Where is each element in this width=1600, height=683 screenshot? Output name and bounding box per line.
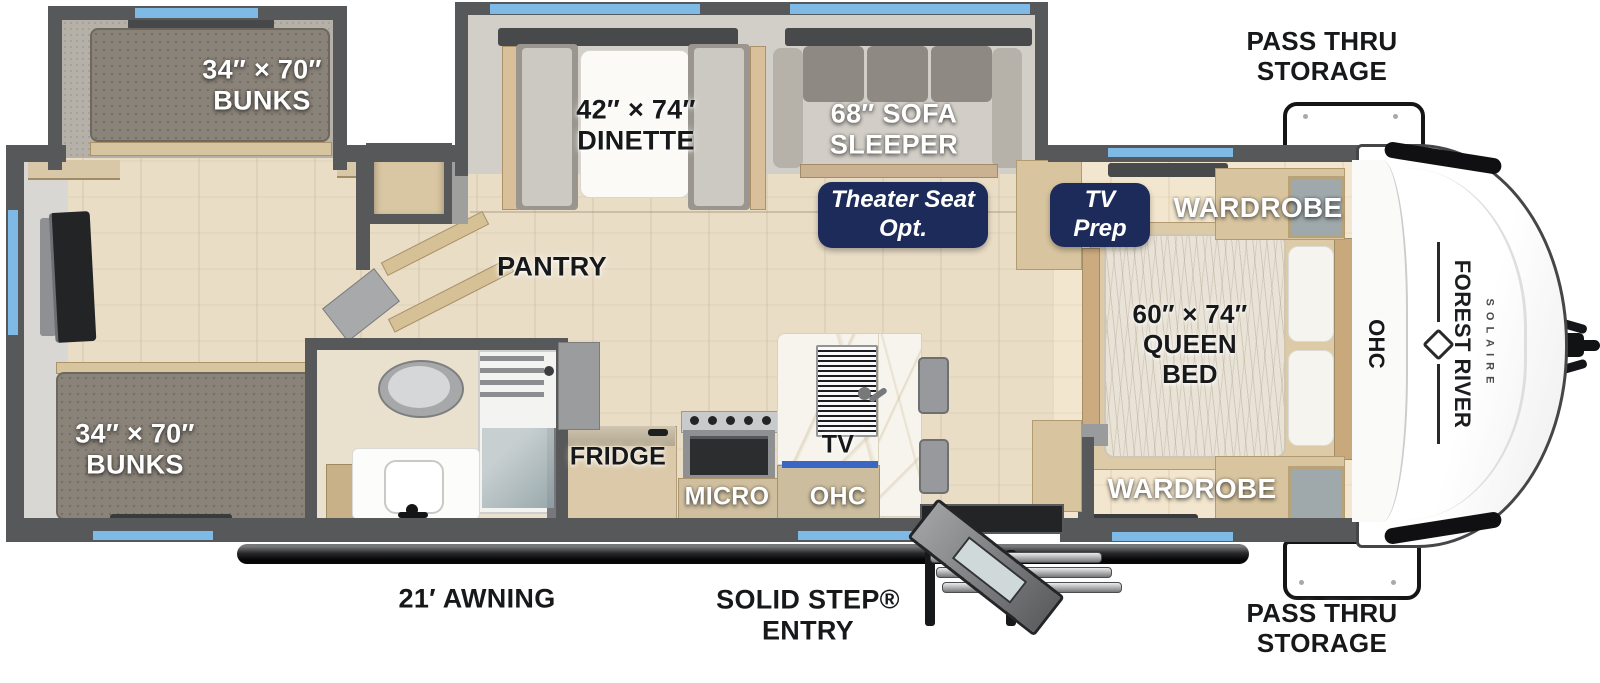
burner-5 (762, 416, 771, 425)
under-slide-ledge (28, 160, 120, 180)
sofa-sleeper-label: 68″ SOFASLEEPER (830, 99, 958, 162)
tv-label: TV (822, 431, 855, 460)
pass-thru-storage-top-label: PASS THRUSTORAGE (1246, 26, 1397, 86)
brand-rule-bottom (1437, 364, 1440, 444)
badge-line: Prep (1073, 215, 1126, 244)
bunks-bottom-label: 34″ × 70″BUNKS (75, 419, 194, 482)
kitchen-window-strip (782, 461, 878, 468)
brand-manufacturer: FOREST RIVER (1449, 260, 1475, 429)
queen-bed-label: 60″ × 74″QUEENBED (1132, 299, 1247, 389)
toilet-lid (388, 366, 450, 408)
pass-thru-door-bottom (1283, 540, 1421, 600)
dinette-bench-right-cushion (694, 48, 744, 206)
sofa-arm-left (773, 48, 803, 168)
island-chair-2 (919, 439, 949, 494)
micro-label: MICRO (685, 483, 770, 512)
dinette-slide-wall-right (1035, 2, 1048, 160)
brand-rule-top (1437, 242, 1440, 322)
bathroom-wall-top (305, 338, 568, 350)
fridge-handle (648, 429, 668, 436)
bunk-slide-wall-right (333, 6, 347, 170)
storage-screw-icon (1303, 114, 1308, 119)
bed-pillow-2 (1288, 350, 1334, 446)
towel-bar-2 (480, 368, 544, 373)
dinette-slide-wall-left (455, 2, 468, 176)
window-bottom-left (93, 531, 213, 540)
rear-exterior-wall (6, 145, 24, 542)
dinette-bench-right-trim (750, 46, 766, 210)
storage-screw-icon (1299, 580, 1304, 585)
window-bunk-slide (135, 8, 258, 18)
dinette-label: 42″ × 74″DINETTE (576, 95, 695, 158)
window-bottom-kitchen (798, 531, 918, 540)
hall-wall (356, 162, 370, 270)
shower-glass (482, 428, 554, 508)
towel-bar-4 (480, 392, 544, 397)
sofa-back-cushion-2 (867, 46, 928, 102)
bathroom-wall-left (305, 338, 317, 532)
pantry-label: PANTRY (497, 251, 607, 282)
ohc-kitchen-label: OHC (810, 483, 866, 512)
dinette-bench-left-cushion (522, 48, 572, 206)
ohc-bedroom-label: OHC (1363, 319, 1389, 369)
shower-head (544, 366, 554, 376)
theater-seat-option-badge: Theater Seat Opt. (818, 182, 988, 248)
bedroom-ohc-bar (1108, 163, 1228, 177)
badge-line: Theater Seat (831, 186, 975, 215)
bunk-top-wood-trim (90, 142, 332, 156)
burner-4 (744, 416, 753, 425)
burner-1 (690, 416, 699, 425)
bed-side-rail (1082, 248, 1100, 442)
burner-3 (726, 416, 735, 425)
awning-label: 21′ AWNING (399, 583, 556, 614)
oven-glass (690, 436, 768, 475)
burner-2 (708, 416, 717, 425)
top-wall-mid (347, 145, 468, 162)
storage-screw-icon (1393, 114, 1398, 119)
wardrobe-bottom-label: WARDROBE (1108, 473, 1277, 505)
badge-line: TV (1085, 186, 1116, 215)
storage-screw-icon (1391, 580, 1396, 585)
solid-step-entry-label: SOLID STEP®ENTRY (716, 585, 900, 648)
fridge-label: FRIDGE (570, 443, 666, 472)
tv-prep-badge: TV Prep (1050, 183, 1150, 247)
window-dinette (490, 4, 700, 14)
wardrobe-bottom-glass (1288, 466, 1344, 524)
utility-cabinet (558, 342, 600, 430)
kitchen-counter-column (878, 333, 922, 517)
wardrobe-top-label: WARDROBE (1174, 192, 1343, 224)
sofa-arm-right (992, 48, 1022, 168)
island-chair-1 (918, 357, 949, 414)
floorplan-canvas: FOREST RIVER SOLAIRE Theater Seat Opt. T… (0, 0, 1600, 683)
badge-line: Opt. (879, 215, 927, 244)
sofa-back-cushion-1 (803, 46, 864, 102)
towel-bar-1 (480, 356, 544, 361)
window-sofa (790, 4, 1030, 14)
bedroom-lower-cabinet (1032, 420, 1082, 512)
window-bedroom-top (1108, 148, 1233, 157)
brand-model: SOLAIRE (1483, 299, 1496, 390)
window-bottom-bedroom (1112, 532, 1233, 541)
hitch-tongue (1580, 340, 1600, 351)
rear-tv (49, 211, 97, 343)
bed-headboard (1334, 238, 1354, 460)
sofa-base-trim (800, 164, 998, 178)
sofa-overhead-cabinet (785, 28, 1032, 46)
bed-pillow-1 (1288, 246, 1334, 342)
window-rear (8, 210, 18, 335)
towel-bar-3 (480, 380, 544, 385)
sofa-back-cushion-3 (931, 46, 992, 102)
bunks-top-label: 34″ × 70″BUNKS (202, 55, 321, 118)
pass-thru-storage-bottom-label: PASS THRUSTORAGE (1246, 598, 1397, 658)
